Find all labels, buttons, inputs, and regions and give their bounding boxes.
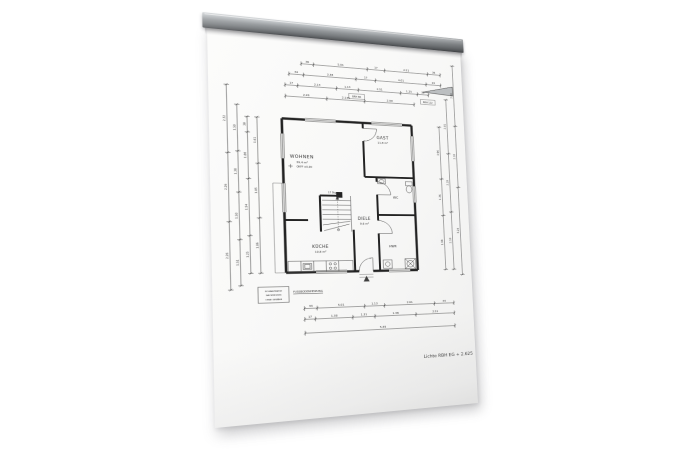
dim-value: 2.26 — [224, 184, 228, 190]
level-cross-marker — [288, 164, 292, 168]
lintel-box-1-label: BRH 86 — [352, 95, 361, 99]
dim-value: 1.85 — [254, 187, 258, 193]
dim-value: 1.38 — [233, 168, 237, 174]
product-photo: 17 Stg — [0, 0, 675, 450]
dim-value: 2.51 — [403, 69, 409, 73]
dim-value: 1.25 — [406, 90, 412, 94]
dim-value: 1.38 — [331, 314, 338, 318]
dim-value: 4.01 — [398, 79, 404, 83]
paper-sheet: 17 Stg — [207, 25, 478, 428]
dim-value: 34 — [294, 71, 298, 75]
dim-value: 2.01 — [443, 124, 446, 130]
dim-value: 1.86 — [255, 242, 259, 248]
dim-value: 1.13 — [371, 302, 377, 306]
dim-value: 1.25 — [245, 251, 249, 257]
room-level-wohnen: OKFF ±0,00 — [296, 165, 312, 169]
room-label-wohnen: WOHNEN — [290, 154, 314, 160]
dim-value: 1.51 — [235, 260, 239, 266]
room-area-diele: 9,6 m² — [360, 222, 370, 225]
dim-value: 2.51 — [377, 88, 383, 92]
dim-value: 2.19 — [446, 180, 450, 186]
dim-value: 1.36 — [438, 194, 442, 200]
room-label-diele: DIELE — [358, 217, 371, 222]
doors-group — [354, 128, 394, 271]
height-note: Lichte RBH EG + 2.625 — [424, 351, 473, 359]
stamp-line-2: NACHMESSEN — [266, 294, 282, 297]
dim-value: 2.30 — [450, 93, 453, 99]
dim-value: 5.49 — [380, 325, 386, 329]
room-area-gast: 11,8 m² — [377, 141, 388, 145]
dim-chain-top1: 365.01172.5136 — [300, 60, 442, 78]
dim-value: 1.38 — [393, 311, 399, 315]
dim-value: 2.99 — [387, 99, 393, 103]
dim-chain-bottom2: 171.381.311.382.51 — [303, 309, 455, 322]
dim-value: 38 — [242, 122, 246, 126]
dim-chain-right3: 1.961.361.98 — [435, 126, 448, 271]
dim-chain-bottom3: 5.49 — [304, 322, 456, 336]
dim-value: 5.01 — [338, 63, 344, 67]
dim-value: 34 — [309, 304, 313, 308]
dim-value: 36 — [432, 71, 435, 74]
dim-value: 2.135 — [342, 96, 350, 100]
dim-chain-top2: 343.38174.0124 — [287, 70, 441, 88]
dim-chain-right2: 2.012.192.10 — [442, 99, 456, 271]
stairs-count-note: 17 Stg — [328, 191, 336, 195]
entrance-arrow-icon — [363, 276, 369, 282]
dim-value: 2.10 — [449, 238, 453, 244]
dim-value: 1.94 — [244, 204, 248, 210]
bathroom-fixtures — [377, 179, 412, 193]
stamp-box: ROHBAUMASSE NACHMESSEN OHNE GEWÄHR — [258, 286, 289, 303]
dim-value: 17 — [374, 66, 378, 69]
room-labels: WOHNEN 39,4 m² OKFF ±0,00 GAST 11,8 m² D… — [287, 131, 401, 254]
room-label-kueche: KÜCHE — [312, 244, 329, 250]
room-label-hwr: HWR — [389, 245, 397, 248]
dim-value: 1.98 — [440, 240, 444, 246]
dim-value: 1.31 — [361, 313, 367, 317]
dim-value: 34 — [442, 299, 445, 302]
dim-value: 2.51 — [432, 310, 438, 314]
floor-heating-note-text: FUSSBODENHEIZUNG — [293, 289, 323, 293]
dim-value: 5.01 — [338, 303, 345, 307]
dim-chain-left2: 1.501.381.501.51 — [232, 103, 244, 287]
dim-value: 1.61 — [253, 137, 257, 143]
stamp-line-1: ROHBAUMASSE — [265, 290, 283, 293]
room-area-kueche: 10,8 m² — [315, 250, 327, 254]
lintel-box-2-label: BRH 112 — [423, 101, 433, 105]
floor-heating-note: FUSSBODENHEIZUNG — [293, 289, 323, 294]
hwr-fixtures — [383, 259, 416, 270]
dim-value: 2.13 — [314, 83, 320, 87]
dimension-chains: 365.01172.5136343.38174.0124172.131.132.… — [221, 44, 468, 339]
section-triangle-icon — [422, 85, 452, 96]
dim-value: 2.32 — [222, 115, 226, 121]
dim-value: 36 — [305, 60, 309, 64]
dim-chain-left4: 1.611.851.86 — [252, 116, 263, 275]
dim-value: 2.61 — [407, 301, 413, 305]
dim-value: 17 — [364, 76, 368, 79]
floor-plan-svg: 17 Stg — [207, 25, 478, 428]
windows-group — [279, 116, 420, 275]
dim-value: 3.24 — [456, 228, 460, 234]
dim-value: 17 — [308, 315, 312, 319]
room-label-wc: WC — [393, 196, 399, 199]
dim-value: 36 — [421, 91, 424, 94]
dim-value: 1.50 — [234, 213, 238, 219]
dim-chain-top4: 2.262.1352.99 — [284, 92, 415, 107]
dim-value: 3.38 — [327, 73, 333, 77]
dim-value: 1.13 — [344, 85, 350, 89]
entrance-steps — [359, 274, 373, 281]
dim-value: 2.32 — [453, 154, 456, 160]
dim-value: 1.96 — [436, 150, 440, 156]
dim-value: 1.88 — [243, 152, 247, 158]
dim-value: 1.50 — [232, 124, 236, 130]
dim-value: 2.26 — [225, 253, 229, 259]
dim-value: 17 — [289, 81, 293, 85]
stamp-line-3: OHNE GEWÄHR — [265, 298, 282, 301]
dim-value: 2.26 — [303, 93, 310, 97]
dim-chain-left1: 2.322.262.26 — [221, 83, 233, 292]
dim-value: 24 — [432, 82, 435, 85]
